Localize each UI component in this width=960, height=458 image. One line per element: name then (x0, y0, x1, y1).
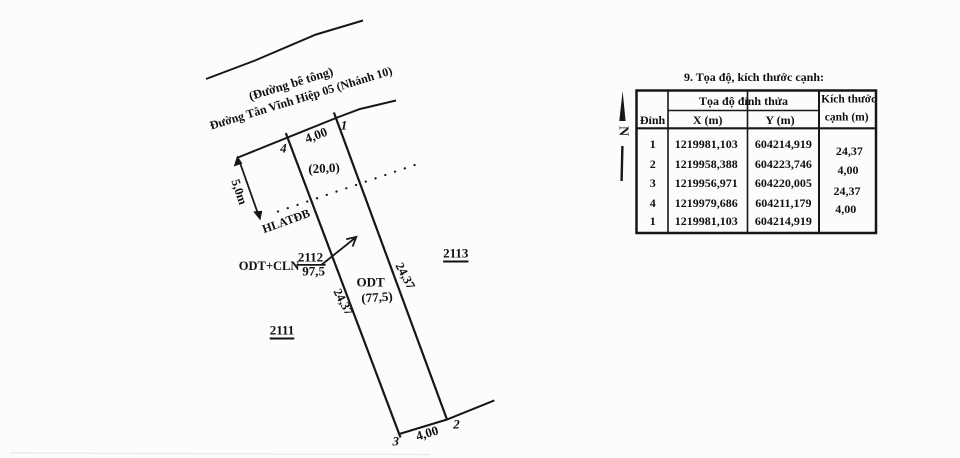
svg-text:N: N (615, 126, 630, 136)
